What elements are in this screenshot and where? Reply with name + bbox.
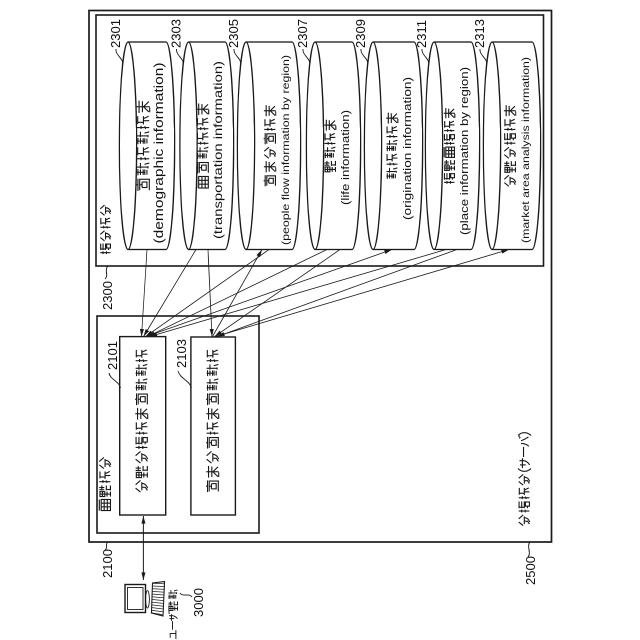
- svg-text:2307: 2307: [295, 19, 310, 48]
- svg-text:(people flow information by r: (people flow information by region): [281, 55, 292, 245]
- svg-text:2101: 2101: [105, 341, 120, 370]
- svg-text:(market area analysis informat: (market area analysis information): [520, 57, 532, 243]
- svg-text:(life information): (life information): [340, 110, 352, 205]
- svg-text:2309: 2309: [353, 19, 368, 48]
- svg-text:2301: 2301: [108, 19, 123, 48]
- svg-text:2300: 2300: [100, 281, 115, 310]
- svg-text:(transportation information): (transportation information): [212, 61, 225, 239]
- svg-text:2303: 2303: [169, 19, 184, 48]
- svg-text:2313: 2313: [472, 19, 487, 48]
- svg-text:2100: 2100: [100, 549, 115, 578]
- svg-text:2500: 2500: [523, 556, 538, 585]
- svg-text:2305: 2305: [226, 19, 241, 48]
- svg-text:2103: 2103: [174, 339, 189, 368]
- svg-text:3000: 3000: [191, 588, 206, 617]
- svg-text:(demographic information): (demographic information): [151, 63, 166, 244]
- svg-text:(place information by region): (place information by region): [459, 67, 471, 235]
- svg-text:(origination information): (origination information): [402, 77, 414, 220]
- svg-text:2311: 2311: [414, 20, 429, 48]
